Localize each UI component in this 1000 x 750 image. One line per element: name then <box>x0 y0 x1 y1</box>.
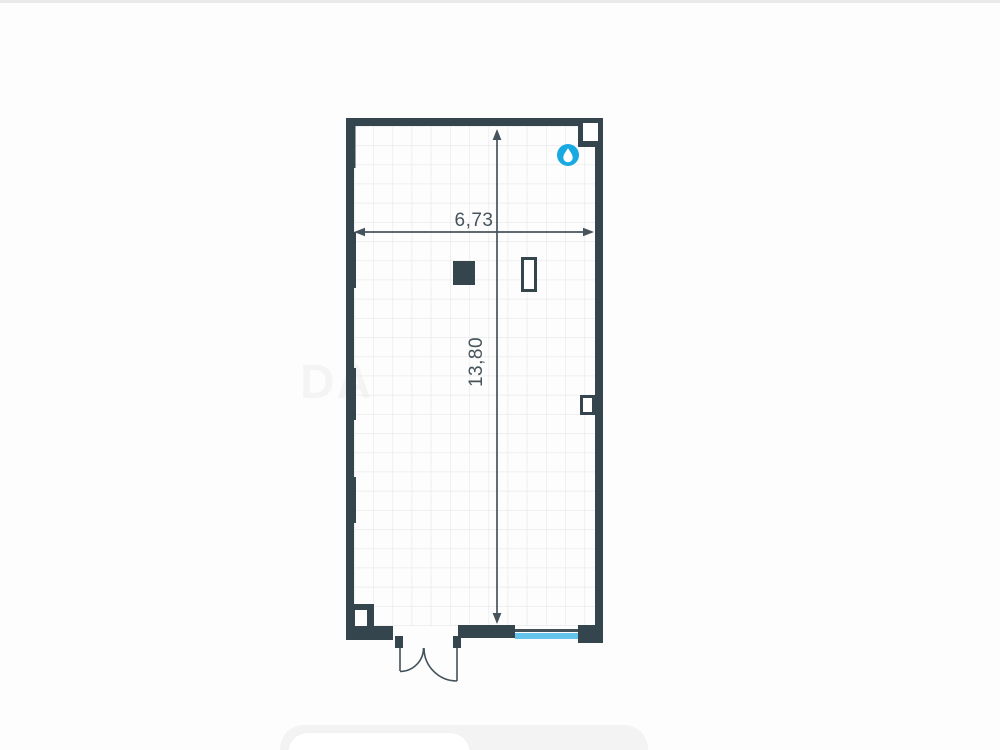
wall-niche-right-hole <box>583 398 592 412</box>
segmented-control <box>280 725 648 750</box>
water-drop-icon <box>557 144 579 166</box>
height-dimension-label: 13,80 <box>466 337 487 387</box>
segment-unselected[interactable] <box>475 733 640 750</box>
wall-bottom-left <box>346 626 393 640</box>
window <box>515 629 578 639</box>
wall-bottom-right <box>578 625 603 643</box>
segment-selected[interactable] <box>288 733 470 750</box>
wall-right <box>595 118 603 643</box>
window-frame <box>515 629 578 632</box>
shaft-bottom-left-hole <box>355 610 367 626</box>
column-outline <box>523 259 536 291</box>
wall-pilaster <box>354 368 356 420</box>
door-jamb-left <box>395 636 403 648</box>
wall-bottom-mid <box>458 625 515 638</box>
wall-top <box>346 118 603 126</box>
floorplan-canvas: DA <box>0 0 1000 750</box>
entry-door <box>400 648 457 681</box>
window-glass <box>515 633 578 639</box>
wall-left <box>346 118 354 640</box>
wall-pilaster <box>354 126 356 168</box>
floorplan-screen: DA <box>0 0 1000 750</box>
door-swing-left <box>400 648 424 672</box>
wall-pilaster <box>354 232 356 288</box>
door-swing-right <box>424 648 457 681</box>
shaft-top-right-hole <box>583 123 598 141</box>
wall-pilaster <box>354 477 356 523</box>
width-dimension-label: 6,73 <box>455 210 494 231</box>
column-solid <box>453 261 475 285</box>
door-jamb-right <box>453 636 461 648</box>
